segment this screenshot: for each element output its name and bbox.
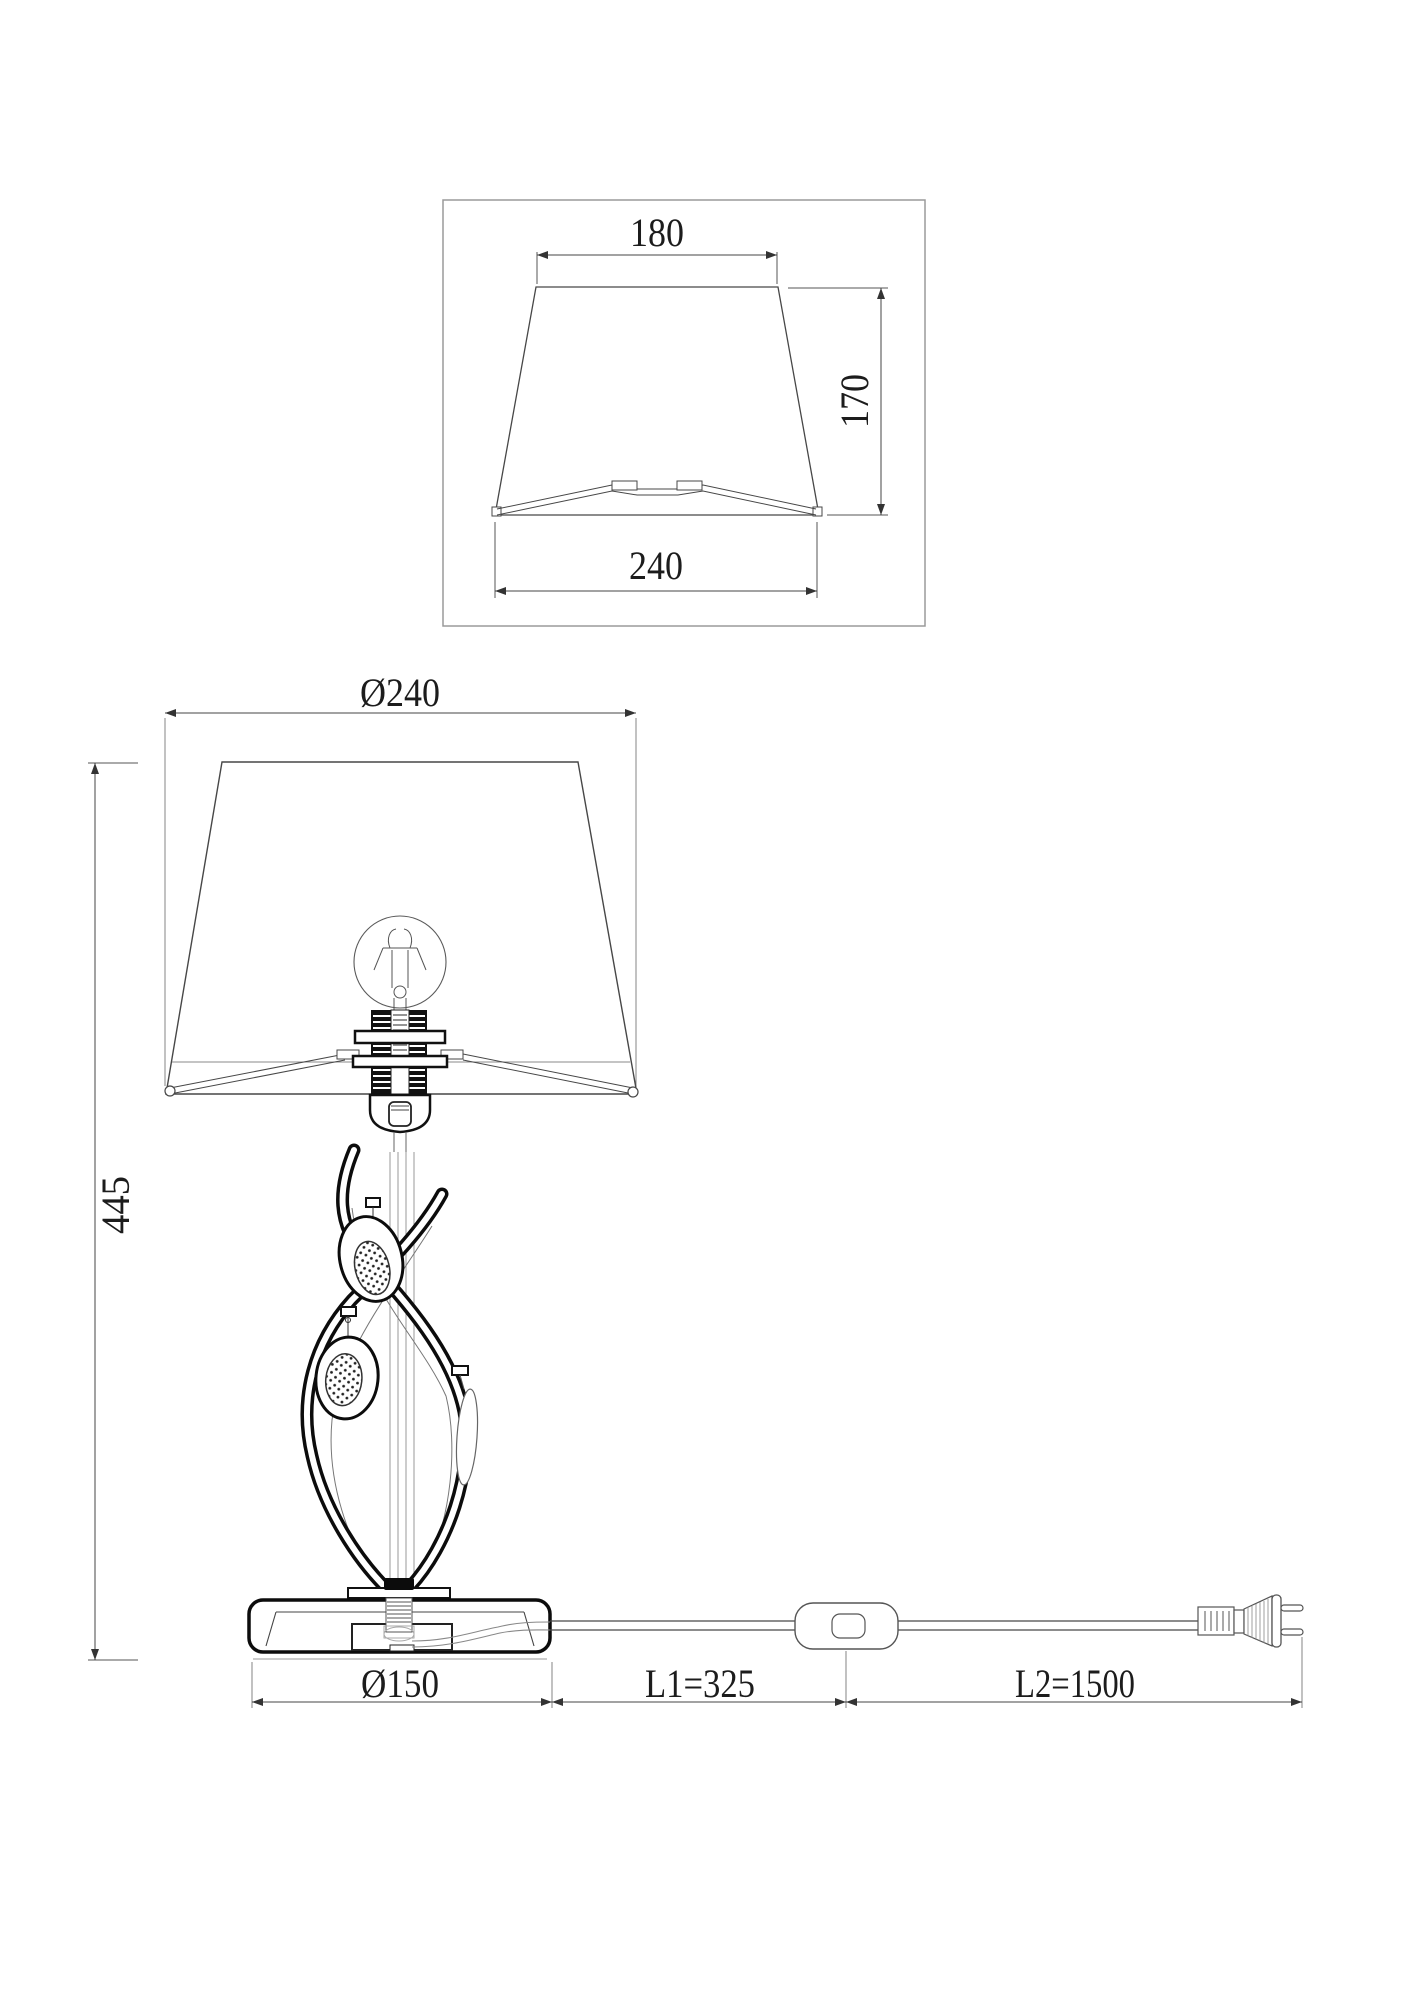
shade-diameter-dim-label: Ø240 bbox=[360, 670, 440, 715]
shade-top-width-dim-label: 180 bbox=[630, 210, 684, 255]
lamp-front-view: Ø240 bbox=[88, 670, 1303, 1708]
center-rod-wires bbox=[390, 1152, 414, 1586]
power-plug bbox=[1198, 1595, 1303, 1647]
shade-outline bbox=[495, 287, 819, 515]
plug-prong-upper bbox=[1281, 1605, 1303, 1611]
socket-flange-upper bbox=[355, 1031, 445, 1043]
leaf-ornament-lower bbox=[312, 1307, 382, 1422]
plug-prong-lower bbox=[1281, 1629, 1303, 1635]
base-diameter-dim-label: Ø150 bbox=[361, 1661, 439, 1706]
lamp-dimension-drawing: 180 170 240 Ø240 bbox=[0, 0, 1413, 2000]
switch-distance-dim-label: L1=325 bbox=[645, 1661, 755, 1706]
switch-button bbox=[832, 1614, 865, 1638]
socket-flange-lower bbox=[353, 1056, 447, 1067]
technical-drawing-page: 180 170 240 Ø240 bbox=[0, 0, 1413, 2000]
shade-bottom-width-dim-label: 240 bbox=[629, 543, 683, 588]
inline-switch bbox=[795, 1603, 898, 1649]
shade-detail-view: 180 170 240 bbox=[443, 200, 925, 626]
total-height-dim-label: 445 bbox=[93, 1176, 138, 1234]
lamp-base bbox=[249, 1578, 550, 1659]
cord-length-dim-label: L2=1500 bbox=[1015, 1661, 1135, 1706]
shade-height-dim-label: 170 bbox=[832, 374, 877, 428]
